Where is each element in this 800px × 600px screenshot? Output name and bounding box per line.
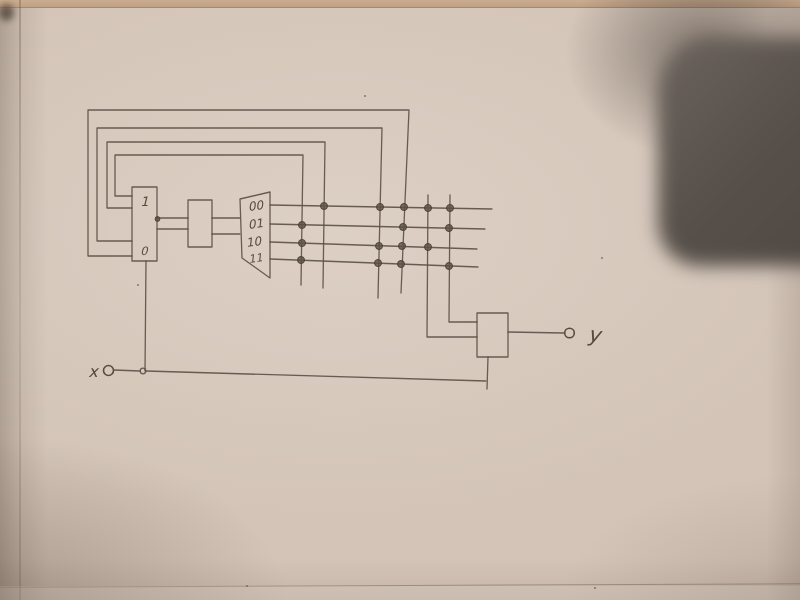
junction-dot [377,204,384,211]
register-bottom-label: 0 [140,244,149,258]
delay-box [188,200,212,247]
junction-dot [376,243,383,250]
paper-speck [364,95,366,97]
junction-dot [447,205,454,212]
output-wire [508,332,564,333]
junction-dot [446,225,453,232]
junction-dot [299,222,306,229]
photo-of-paper: 1 0 00 01 10 11 y x [0,0,800,600]
decoder-label-01: 01 [247,216,264,232]
decoder-label-11: 11 [248,251,264,266]
paper-specks [137,95,603,589]
feedback-loop-2 [97,128,382,298]
junction-dot [401,204,408,211]
paper-speck [601,257,603,259]
junction-dot [299,240,306,247]
decoder-label-10: 10 [245,234,263,250]
x-terminal-wire [114,370,140,371]
junction-dot [398,261,405,268]
junction-dot [399,243,406,250]
gate-bottom-wire [487,357,488,389]
junction-dot [425,205,432,212]
x-terminal-circle [104,366,114,376]
x-label: x [88,362,99,381]
junction-dot [375,260,382,267]
output-gate-box [477,313,508,357]
feedback-loop-3 [107,142,325,288]
y-terminal-circle [565,328,575,338]
register-clock-wire [145,261,146,371]
junction-dot [400,224,407,231]
x-bus-wire [146,371,486,381]
decoder-label-00: 00 [247,198,265,214]
feedback-loop-4 [115,155,303,285]
paper-speck [594,587,596,589]
dark-shadow-object [658,38,800,266]
matrix-junction-dots [155,203,453,270]
junction-dot [298,257,305,264]
junction-dot [321,203,328,210]
junction-dot [155,217,160,222]
collector-column-right [449,195,477,322]
register-top-label: 1 [140,194,148,209]
junction-dot [446,263,453,270]
y-label: y [586,322,603,347]
junction-dot [425,244,432,251]
paper-speck [246,585,248,587]
paper-speck [137,284,139,286]
